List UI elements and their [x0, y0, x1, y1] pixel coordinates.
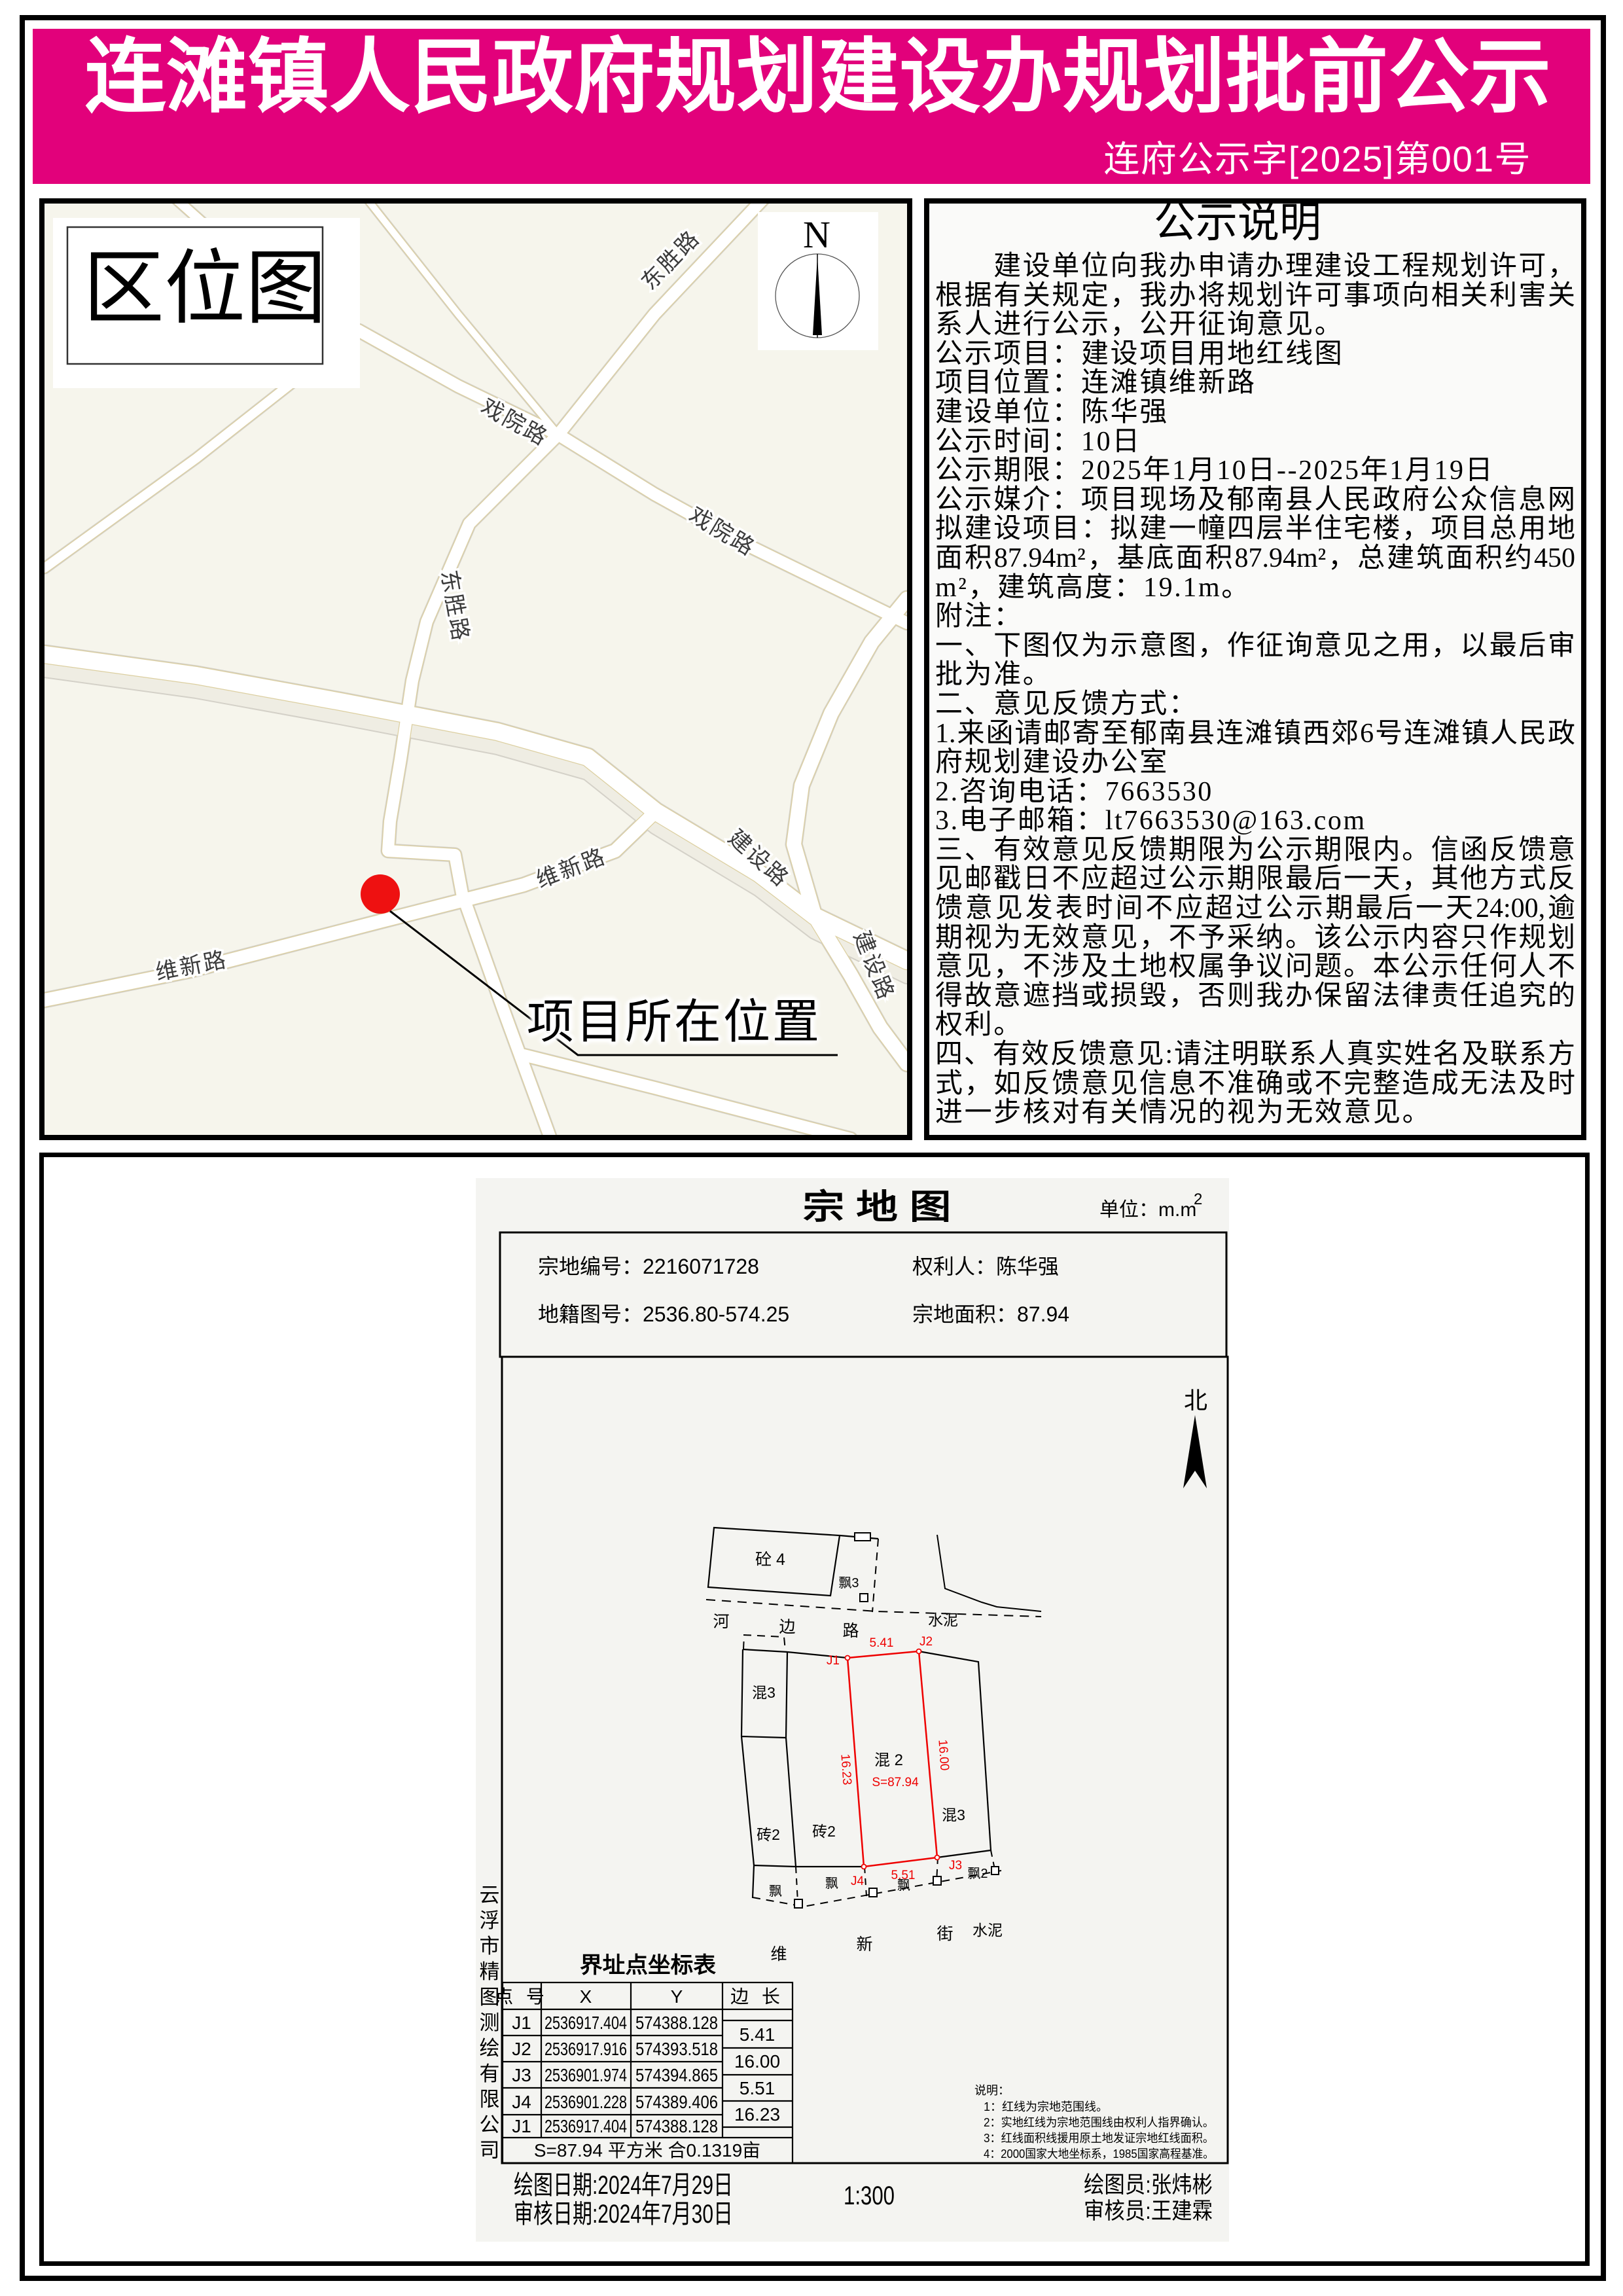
- svg-text:2536917.404: 2536917.404: [544, 2116, 627, 2136]
- svg-text:16.00: 16.00: [935, 1739, 951, 1771]
- svg-text:审核日期:2024年7月30日: 审核日期:2024年7月30日: [514, 2200, 733, 2229]
- svg-text:边 长: 边 长: [730, 1986, 784, 2007]
- svg-text:路: 路: [842, 1622, 859, 1640]
- svg-text:574388.128: 574388.128: [635, 2116, 718, 2136]
- svg-text:混3: 混3: [942, 1806, 965, 1823]
- svg-text:574394.865: 574394.865: [635, 2065, 718, 2085]
- svg-text:S=87.94: S=87.94: [872, 1776, 919, 1789]
- svg-text:砖2: 砖2: [757, 1826, 780, 1843]
- svg-text:北: 北: [1184, 1387, 1207, 1414]
- svg-text:云: 云: [480, 1884, 500, 1907]
- svg-text:2536917.916: 2536917.916: [544, 2039, 627, 2059]
- svg-text:5.41: 5.41: [870, 1636, 894, 1650]
- svg-text:限: 限: [480, 2088, 500, 2111]
- svg-text:宗地面积：87.94: 宗地面积：87.94: [912, 1302, 1069, 1326]
- svg-text:单位：m.m: 单位：m.m: [1099, 1199, 1196, 1221]
- svg-text:5.41: 5.41: [740, 2024, 776, 2045]
- svg-text:J4: J4: [512, 2092, 531, 2112]
- svg-text:维: 维: [770, 1945, 787, 1964]
- svg-text:16.00: 16.00: [734, 2051, 780, 2072]
- svg-text:市: 市: [480, 1935, 500, 1958]
- svg-text:16.23: 16.23: [838, 1753, 853, 1785]
- svg-text:绘: 绘: [480, 2037, 500, 2060]
- svg-text:宗地编号：2216071728: 宗地编号：2216071728: [538, 1255, 759, 1278]
- svg-text:审核员:王建霖: 审核员:王建霖: [1084, 2198, 1213, 2224]
- svg-text:J2: J2: [919, 1635, 933, 1649]
- svg-text:2：实地红线为宗地范围线由权利人指界确认。: 2：实地红线为宗地范围线由权利人指界确认。: [984, 2116, 1214, 2129]
- svg-text:574389.406: 574389.406: [635, 2092, 718, 2112]
- svg-text:2536901.974: 2536901.974: [544, 2065, 627, 2085]
- svg-text:浮: 浮: [480, 1909, 500, 1932]
- svg-text:地籍图号：2536.80-574.25: 地籍图号：2536.80-574.25: [538, 1302, 789, 1326]
- svg-text:权利人：陈华强: 权利人：陈华强: [912, 1255, 1059, 1278]
- svg-text:J4: J4: [851, 1874, 865, 1888]
- svg-text:边: 边: [779, 1618, 795, 1636]
- svg-text:J2: J2: [512, 2039, 531, 2059]
- svg-text:574393.518: 574393.518: [635, 2039, 718, 2059]
- svg-text:绘图员:张炜彬: 绘图员:张炜彬: [1084, 2172, 1213, 2198]
- svg-text:街: 街: [936, 1925, 953, 1943]
- svg-text:精: 精: [480, 1960, 500, 1983]
- svg-text:5.51: 5.51: [740, 2078, 776, 2098]
- svg-text:点 号: 点 号: [495, 1986, 548, 2007]
- svg-text:J1: J1: [827, 1654, 840, 1668]
- svg-text:混3: 混3: [752, 1684, 776, 1701]
- svg-text:砖2: 砖2: [812, 1823, 836, 1840]
- svg-text:3：红线面积线援用原土地发证宗地红线面积。: 3：红线面积线援用原土地发证宗地红线面积。: [984, 2132, 1214, 2145]
- svg-text:飘: 飘: [769, 1884, 782, 1899]
- svg-text:测: 测: [480, 2011, 500, 2034]
- svg-text:1:300: 1:300: [844, 2181, 895, 2210]
- svg-text:宗 地 图: 宗 地 图: [803, 1189, 952, 1227]
- svg-text:2536901.228: 2536901.228: [544, 2092, 627, 2112]
- svg-text:飘3: 飘3: [838, 1576, 859, 1590]
- svg-text:说明：: 说明：: [974, 2084, 1010, 2097]
- svg-text:水泥: 水泥: [972, 1922, 1003, 1939]
- svg-text:J1: J1: [512, 2116, 531, 2136]
- svg-text:4：2000国家大地坐标系，1985国家高程基准。: 4：2000国家大地坐标系，1985国家高程基准。: [984, 2147, 1214, 2161]
- svg-text:5.51: 5.51: [891, 1869, 916, 1882]
- svg-text:J3: J3: [512, 2065, 531, 2085]
- svg-text:574388.128: 574388.128: [635, 2013, 718, 2033]
- svg-text:新: 新: [856, 1935, 872, 1954]
- svg-text:2536917.404: 2536917.404: [544, 2013, 627, 2033]
- svg-text:N: N: [803, 213, 830, 256]
- svg-text:飘2: 飘2: [967, 1867, 988, 1881]
- svg-text:水泥: 水泥: [928, 1611, 958, 1628]
- svg-text:1：红线为宗地范围线。: 1：红线为宗地范围线。: [984, 2100, 1108, 2113]
- svg-text:飘: 飘: [825, 1876, 838, 1891]
- svg-text:16.23: 16.23: [734, 2104, 780, 2125]
- svg-text:X: X: [580, 1986, 592, 2007]
- svg-text:J3: J3: [949, 1859, 962, 1873]
- svg-text:绘图日期:2024年7月29日: 绘图日期:2024年7月29日: [514, 2171, 733, 2200]
- svg-text:砼 4: 砼 4: [755, 1551, 785, 1569]
- svg-text:界址点坐标表: 界址点坐标表: [580, 1953, 716, 1978]
- svg-text:司: 司: [480, 2139, 500, 2162]
- svg-text:S=87.94 平方米 合0.1319亩: S=87.94 平方米 合0.1319亩: [534, 2140, 760, 2161]
- svg-text:混 2: 混 2: [874, 1751, 903, 1769]
- svg-text:有: 有: [480, 2062, 500, 2085]
- svg-text:2: 2: [1194, 1191, 1202, 1208]
- svg-text:公: 公: [480, 2113, 500, 2136]
- svg-text:J1: J1: [512, 2013, 531, 2033]
- svg-text:河: 河: [713, 1613, 729, 1631]
- svg-text:Y: Y: [671, 1986, 683, 2007]
